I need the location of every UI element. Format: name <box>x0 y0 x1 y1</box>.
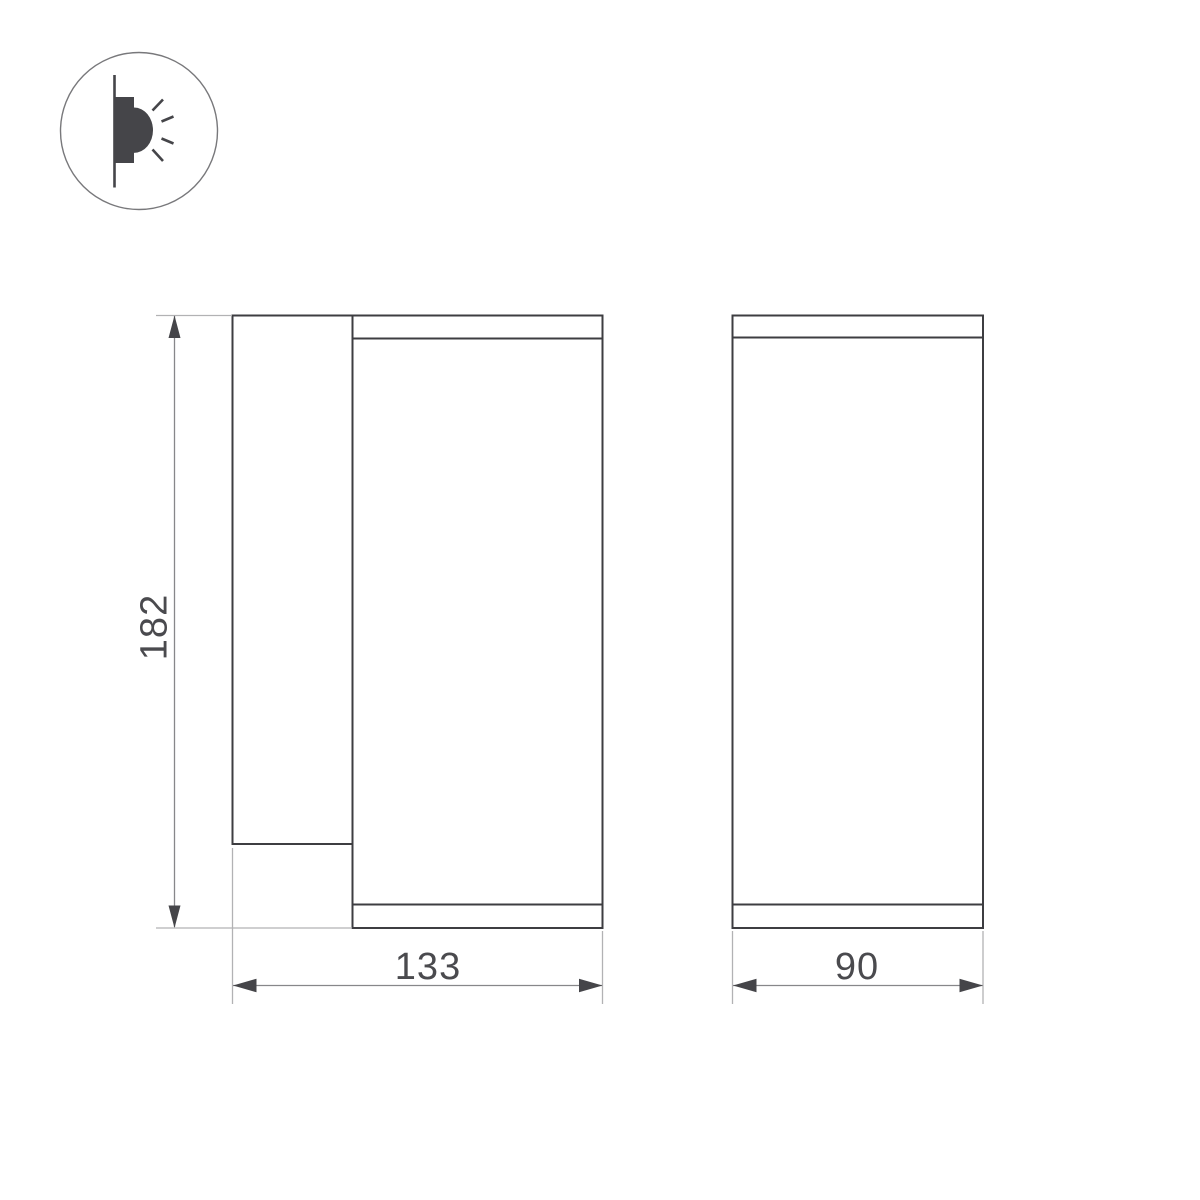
height-arrow-down <box>169 906 181 929</box>
front-view-wall-plate <box>233 316 353 845</box>
dimension-drawing: 182 133 90 <box>0 0 1200 1200</box>
technical-drawing-page: 182 133 90 <box>0 0 1200 1200</box>
depth-arrow-right <box>960 979 984 993</box>
side-view-body <box>733 316 984 929</box>
depth-dimension: 90 <box>733 931 984 1004</box>
front-view-body <box>353 316 603 929</box>
icon-fixture-body <box>114 97 134 163</box>
icon-lens <box>134 108 153 153</box>
side-view <box>733 316 984 929</box>
wall-light-side-emission-icon <box>61 53 218 210</box>
front-view <box>233 316 603 929</box>
icon-light-rays <box>153 100 174 162</box>
height-dimension: 182 <box>134 316 353 929</box>
width-dimension: 133 <box>233 848 603 1004</box>
depth-arrow-left <box>733 979 757 993</box>
width-arrow-right <box>579 979 603 993</box>
depth-dimension-label: 90 <box>835 946 879 988</box>
width-dimension-label: 133 <box>395 946 461 988</box>
height-dimension-label: 182 <box>134 594 176 660</box>
width-arrow-left <box>233 979 257 993</box>
height-arrow-up <box>169 316 181 339</box>
